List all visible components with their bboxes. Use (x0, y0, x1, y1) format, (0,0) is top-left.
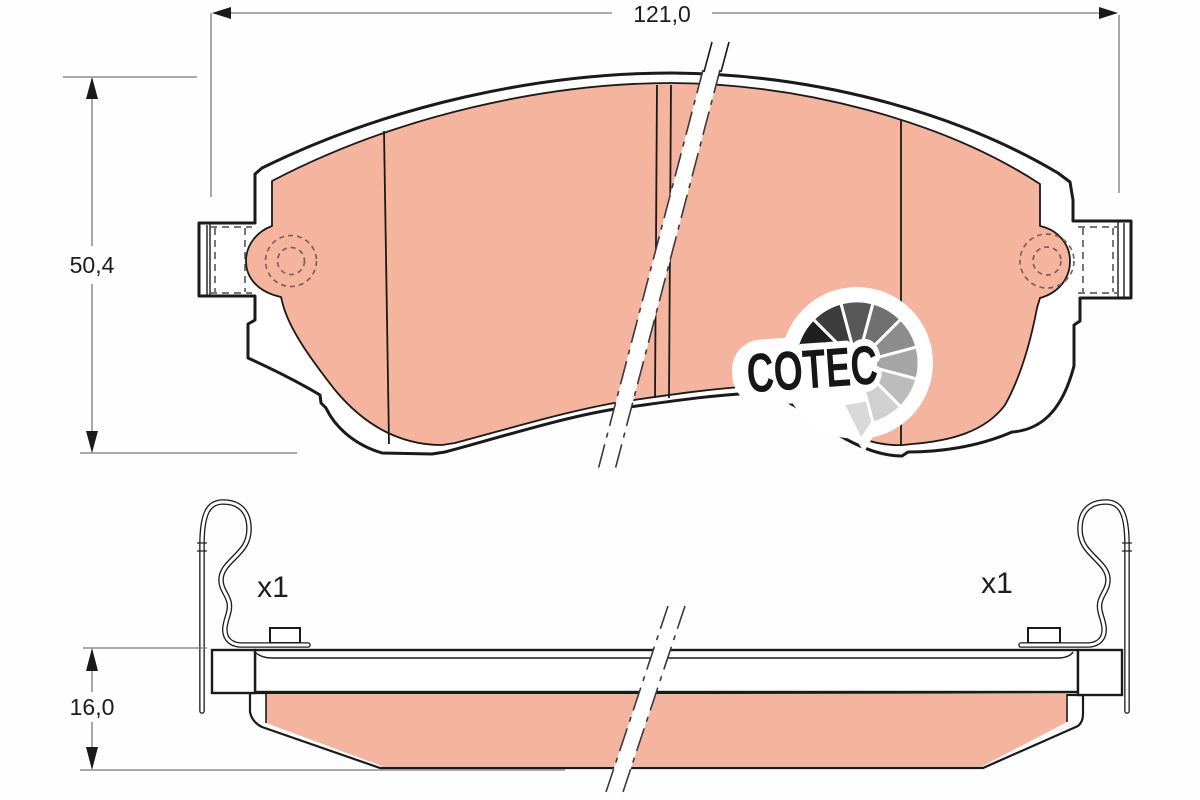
width-dimension-label: 121,0 (633, 1, 691, 27)
left-clip-quantity-label: x1 (257, 571, 289, 604)
brake-pad-technical-drawing: COTEC 121,0 50,4 (0, 0, 1200, 800)
arrow-up-icon (86, 648, 98, 671)
height-dimension-label: 50,4 (70, 252, 115, 278)
arrow-right-icon (1099, 7, 1118, 19)
left-nub (270, 628, 300, 643)
logo-text: COTEC (745, 333, 880, 404)
top-view-pad-face (199, 42, 1131, 470)
bottom-view-side-profile: x1 x1 (197, 502, 1132, 792)
arrow-left-icon (212, 7, 231, 19)
arrow-down-icon (86, 431, 98, 453)
side-friction-material (266, 694, 1067, 767)
plate-left-end-block (212, 650, 255, 693)
right-nub (1028, 628, 1060, 643)
plate-right-end-block (1078, 650, 1122, 695)
right-clip-quantity-label: x1 (981, 567, 1013, 600)
thickness-dimension-label: 16,0 (70, 694, 115, 720)
arrow-up-icon (86, 77, 98, 99)
arrow-down-icon (86, 747, 98, 770)
drawing-canvas: COTEC 121,0 50,4 (0, 0, 1200, 800)
